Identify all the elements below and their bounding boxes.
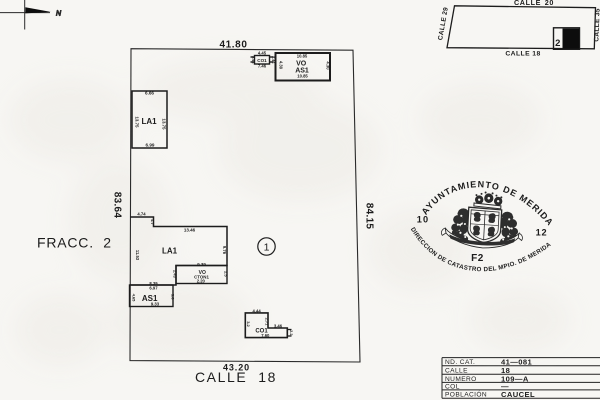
svg-text:LA1: LA1 bbox=[141, 117, 157, 126]
svg-text:10: 10 bbox=[417, 215, 430, 225]
svg-text:83.64: 83.64 bbox=[112, 192, 123, 219]
svg-text:CALLE 18: CALLE 18 bbox=[505, 51, 540, 58]
svg-text:2.46: 2.46 bbox=[271, 56, 275, 63]
svg-text:41.80: 41.80 bbox=[219, 39, 247, 50]
svg-text:9.39: 9.39 bbox=[197, 262, 206, 267]
svg-text:4.30: 4.30 bbox=[325, 61, 330, 70]
svg-text:4.30: 4.30 bbox=[279, 61, 284, 70]
svg-text:AS1: AS1 bbox=[295, 67, 309, 74]
svg-text:7.60: 7.60 bbox=[261, 333, 270, 338]
svg-text:11.53: 11.53 bbox=[135, 250, 140, 261]
svg-text:3.2: 3.2 bbox=[246, 321, 251, 327]
svg-text:CALLE: CALLE bbox=[445, 368, 468, 375]
svg-text:2.20: 2.20 bbox=[197, 278, 206, 283]
svg-text:2.5: 2.5 bbox=[223, 271, 228, 277]
svg-text:13.75: 13.75 bbox=[162, 119, 167, 131]
svg-text:6.66: 6.66 bbox=[145, 90, 154, 95]
svg-text:COL: COL bbox=[445, 383, 460, 390]
svg-text:NUMERO: NUMERO bbox=[445, 376, 477, 383]
svg-text:ND. CAT.: ND. CAT. bbox=[445, 359, 475, 366]
svg-text:84.15: 84.15 bbox=[364, 203, 375, 230]
svg-text:2.71: 2.71 bbox=[265, 318, 270, 327]
svg-text:1: 1 bbox=[264, 242, 270, 254]
svg-text:12: 12 bbox=[536, 228, 548, 238]
svg-text:9.33: 9.33 bbox=[151, 301, 160, 306]
svg-text:CAUCEL: CAUCEL bbox=[501, 390, 535, 399]
svg-text:4.65: 4.65 bbox=[132, 294, 137, 303]
svg-text:CO1: CO1 bbox=[257, 58, 267, 63]
svg-text:FRACC. 2: FRACC. 2 bbox=[37, 235, 112, 251]
svg-text:N: N bbox=[56, 11, 62, 18]
svg-text:13.75: 13.75 bbox=[135, 117, 140, 129]
svg-text:7.46: 7.46 bbox=[258, 63, 267, 68]
svg-text:CALLE 20: CALLE 20 bbox=[514, 0, 554, 7]
svg-text:9.76: 9.76 bbox=[222, 246, 227, 255]
svg-text:6.99: 6.99 bbox=[146, 142, 155, 147]
svg-text:10.85: 10.85 bbox=[297, 53, 308, 58]
svg-text:4.7: 4.7 bbox=[150, 219, 155, 225]
svg-text:2.43: 2.43 bbox=[173, 270, 178, 279]
svg-text:F2: F2 bbox=[471, 253, 484, 264]
svg-text:POBLACIÓN: POBLACIÓN bbox=[445, 390, 487, 399]
svg-text:6.97: 6.97 bbox=[149, 285, 158, 290]
svg-text:3.46: 3.46 bbox=[274, 323, 283, 328]
svg-text:13.46: 13.46 bbox=[184, 227, 196, 232]
svg-text:CALLE 29: CALLE 29 bbox=[437, 7, 450, 41]
svg-text:4.44: 4.44 bbox=[253, 308, 262, 313]
svg-text:2: 2 bbox=[555, 38, 560, 49]
svg-text:4.74: 4.74 bbox=[137, 212, 146, 217]
svg-text:2.2: 2.2 bbox=[289, 330, 293, 335]
svg-text:LA1: LA1 bbox=[162, 247, 178, 256]
svg-text:4.45: 4.45 bbox=[258, 51, 267, 56]
svg-text:3.6: 3.6 bbox=[170, 294, 175, 300]
svg-text:CALLE 35: CALLE 35 bbox=[593, 8, 600, 42]
svg-text:2.46: 2.46 bbox=[251, 56, 255, 63]
svg-text:CALLE 18: CALLE 18 bbox=[195, 369, 277, 385]
